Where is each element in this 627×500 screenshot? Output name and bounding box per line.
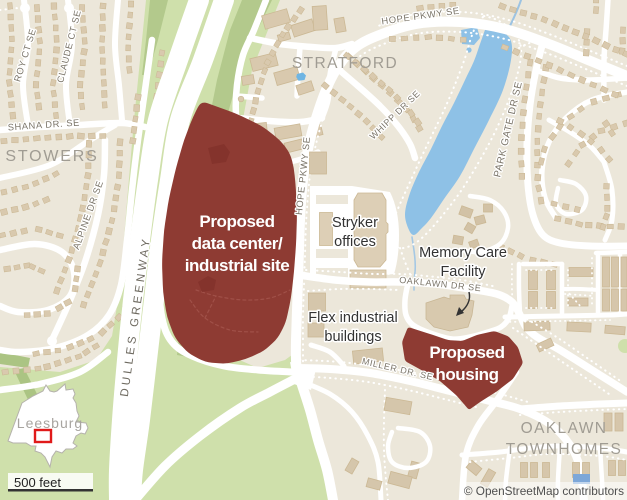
svg-text:offices: offices [334, 234, 376, 250]
svg-text:buildings: buildings [324, 329, 381, 345]
svg-text:Proposed: Proposed [199, 212, 274, 231]
svg-text:Flex industrial: Flex industrial [308, 310, 397, 326]
svg-text:STRATFORD: STRATFORD [292, 55, 398, 72]
svg-text:Proposed: Proposed [429, 343, 504, 362]
svg-text:TOWNHOMES: TOWNHOMES [506, 441, 623, 458]
svg-text:500 feet: 500 feet [14, 475, 61, 490]
svg-text:OAKLAWN: OAKLAWN [521, 420, 608, 437]
svg-text:Facility: Facility [440, 264, 486, 280]
svg-text:© OpenStreetMap contributors: © OpenStreetMap contributors [464, 484, 624, 498]
svg-text:housing: housing [435, 365, 498, 384]
svg-text:data center/: data center/ [192, 234, 283, 253]
svg-text:Leesburg: Leesburg [17, 415, 83, 431]
svg-text:STOWERS: STOWERS [5, 148, 98, 165]
svg-text:Memory Care: Memory Care [419, 245, 507, 261]
svg-text:Stryker: Stryker [332, 215, 378, 231]
svg-text:industrial site: industrial site [185, 256, 290, 275]
